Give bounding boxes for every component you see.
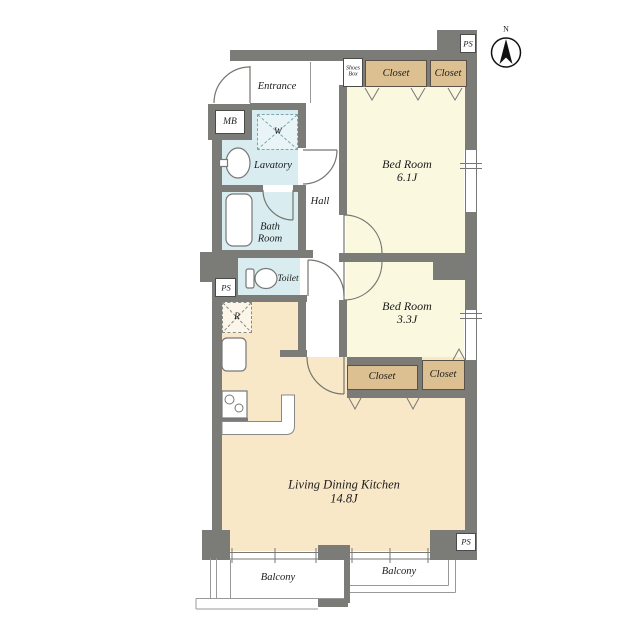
wall-bedroom-step: [433, 253, 477, 280]
ps-middle-label: PS: [221, 283, 230, 292]
wall-hall-east-2: [339, 300, 347, 357]
toilet-door: [308, 260, 344, 296]
compass-north-label: N: [503, 26, 509, 35]
wall-left: [212, 140, 222, 532]
wall-between-bedrooms: [339, 253, 437, 262]
wall-balcony-divider-foot: [318, 598, 348, 607]
shoes-box-label: Shoes Box: [346, 66, 360, 79]
wall-mid-closet-bottom: [347, 390, 465, 398]
wall-mid-closet-top: [347, 357, 418, 365]
toilet-label: Toilet: [277, 274, 298, 284]
bedroom2-label: Bed Room 3.3J: [382, 300, 432, 326]
entrance-label: Entrance: [258, 81, 297, 93]
bedroom1-label: Bed Room 6.1J: [382, 158, 432, 184]
compass-icon: [492, 38, 521, 67]
wall-hall-west-1: [298, 103, 306, 148]
closet-top-2-label: Closet: [435, 68, 462, 80]
closet-top-1-label: Closet: [383, 68, 410, 80]
wall-ldk-stub: [280, 350, 307, 357]
ps-top-label: PS: [463, 39, 472, 48]
ldk-area-left: [222, 302, 306, 552]
wall-lavatory-bath-b: [293, 185, 298, 192]
ldk-label: Living Dining Kitchen 14.8J: [288, 478, 400, 507]
meter-box-label: MB: [223, 117, 237, 127]
wall-right-lower: [465, 360, 477, 532]
wall-corner-bottom-left: [202, 530, 230, 560]
wall-lavatory-bath-a: [222, 185, 263, 192]
entrance-door: [214, 66, 250, 103]
closet-mid-1-label: Closet: [369, 371, 396, 383]
wall-kitchen-bar: [222, 418, 248, 425]
balcony-left-label: Balcony: [261, 572, 295, 584]
lavatory-label: Lavatory: [254, 160, 292, 172]
wall-hall-east-1: [339, 85, 347, 215]
wall-hall-west-2: [298, 185, 306, 258]
closet-mid-2-label: Closet: [430, 369, 457, 381]
lavatory-door: [303, 150, 337, 184]
hall-label: Hall: [311, 196, 330, 208]
fridge-label: R: [234, 312, 240, 322]
wall-hall-west-3: [298, 295, 306, 352]
floor-plan: Entrance MB W Lavatory Hall Bath Room To…: [0, 0, 640, 640]
wall-bath-toilet: [212, 250, 313, 258]
ps-bottom-label: PS: [461, 537, 470, 546]
wall-balcony-divider: [344, 558, 350, 603]
balcony-right-label: Balcony: [382, 566, 416, 578]
washer-label: W: [274, 127, 282, 137]
wall-lavatory-top: [250, 103, 298, 110]
bathroom-label: Bath Room: [258, 221, 283, 244]
